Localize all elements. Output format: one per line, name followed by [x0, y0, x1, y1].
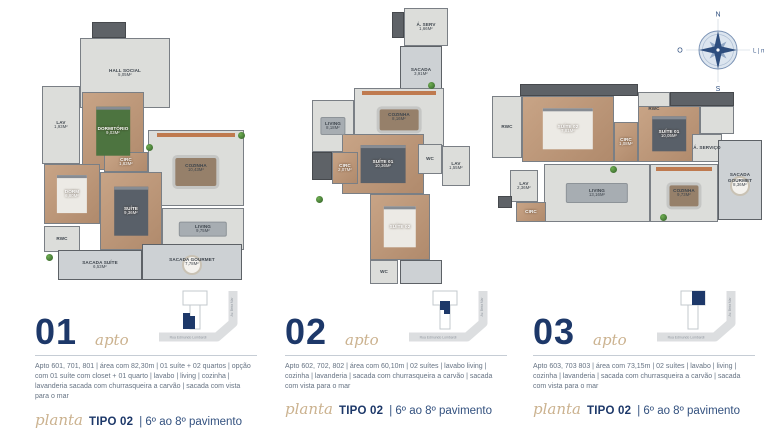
room-label: SACADA GOURMET7,78m²: [169, 257, 215, 267]
plant-icon: [316, 196, 323, 203]
pavimento-label: | 6º ao 8º pavimento: [139, 416, 242, 428]
compass-rose-icon: N S O L | mar: [672, 8, 764, 99]
room-area: 9,73m²: [673, 193, 695, 198]
room-label: DORMITÓRIO9,03m²: [98, 126, 129, 136]
compass-south-label: S: [716, 86, 721, 93]
room-dorm: DORM6,80m²: [44, 164, 100, 224]
room-label: LIVING9,75m²: [195, 224, 211, 234]
room-su-te-01: SUÍTE 0110,05m²: [638, 106, 700, 162]
room-wall-segment: [92, 22, 126, 38]
room-wall-segment: [700, 106, 734, 134]
room-label: CIRC: [525, 209, 537, 214]
room-label: LIVING8,18m²: [325, 121, 341, 131]
room-label: CIRC1,83m²: [119, 157, 133, 167]
room-label: SUÍTE 02: [390, 224, 411, 229]
unit-divider: [533, 355, 755, 356]
room-label: SUÍTE 027,81m²: [558, 124, 579, 134]
room-label: SUÍTE9,36m²: [124, 206, 138, 216]
unit-number: 03: [533, 311, 575, 353]
room-area: 13,16m²: [589, 193, 605, 198]
room-area: 1,83m²: [119, 162, 133, 167]
plant-icon: [46, 254, 53, 261]
room-wall-segment: [312, 152, 332, 180]
street-label-right: Av. Beira Mar: [480, 297, 484, 317]
unit-divider: [35, 355, 257, 356]
plant-icon: [146, 144, 153, 151]
room-cozinha: COZINHA10,43m²: [148, 130, 244, 206]
room-area: 1,93m²: [54, 125, 68, 130]
plant-icon: [238, 132, 245, 139]
room-lav: LAV1,55m²: [442, 146, 470, 186]
pavimento-label: | 6º ao 8º pavimento: [389, 405, 492, 417]
room-wall-segment: [392, 12, 404, 38]
room-label: LAV1,55m²: [449, 161, 463, 171]
room-sacada-su-te: SACADA SUÍTE6,53m²: [58, 250, 142, 280]
compass-west-label: O: [677, 48, 683, 55]
room-area: 9,36m²: [124, 211, 138, 216]
room-label: DORM6,80m²: [65, 189, 79, 199]
room-area: 7,81m²: [558, 129, 579, 134]
room-label: SACADA SUÍTE6,53m²: [82, 260, 118, 270]
unit-section-01: 01 apto Rua Edmundo Lombardi Av. Beira M…: [35, 287, 257, 429]
brochure-page: HALL SOCIAL5,05m²LAV1,93m²DORMITÓRIO9,03…: [0, 0, 768, 432]
room-area: 10,43m²: [185, 168, 207, 173]
room-label: WC: [426, 156, 434, 161]
unit-section-03: 03 apto Rua Edmundo Lombardi Av. Beira M…: [533, 287, 755, 429]
room-area: 1,66m²: [417, 27, 436, 32]
street-label-bottom: Rua Edmundo Lombardi: [420, 336, 457, 340]
room-label: LAV2,36m²: [517, 181, 531, 191]
planta-script-label: planta: [285, 400, 333, 418]
tipo-label: TIPO 02: [339, 405, 383, 417]
street-label-right: Av. Beira Mar: [230, 297, 234, 317]
compass-east-label: L | mar: [753, 49, 764, 55]
room-sacada-gourmet: SACADA GOURMET8,36m²: [718, 140, 762, 220]
room-su-te-02: SUÍTE 02: [370, 194, 430, 260]
room-area: 8,18m²: [325, 126, 341, 131]
unit-location-map: Rua Edmundo Lombardi Av. Beira Mar: [651, 287, 751, 347]
room-lav: LAV1,93m²: [42, 86, 80, 164]
room-label: SACADA GOURMET8,36m²: [719, 172, 761, 187]
room-wall-segment: [498, 196, 512, 208]
room-label: SACADA3,91m²: [411, 67, 431, 77]
room-area: 2,36m²: [517, 186, 531, 191]
room-area: 6,53m²: [82, 265, 118, 270]
planta-script-label: planta: [35, 411, 83, 429]
unit-section-02: 02 apto Rua Edmundo Lombardi Av. Beira M…: [285, 287, 507, 429]
room-circ: CIRC: [516, 202, 546, 222]
plant-icon: [610, 166, 617, 173]
compass-north-label: N: [715, 12, 720, 19]
room-label: COZINHA10,43m²: [185, 163, 207, 173]
room-wc: WC: [418, 144, 442, 174]
room-wall-segment: [400, 260, 442, 284]
room-label: COZINHA9,73m²: [673, 188, 695, 198]
floorplan-02: Á. SERV1,66m²SACADA3,91m²COZINHA8,16m²LI…: [312, 8, 470, 286]
unit-location-map: Rua Edmundo Lombardi Av. Beira Mar: [403, 287, 503, 347]
room-label: RWC: [648, 106, 659, 111]
room-cozinha: COZINHA9,73m²: [650, 164, 718, 222]
room-wall-segment: [520, 84, 638, 96]
room-su-te-02: SUÍTE 027,81m²: [522, 96, 614, 162]
room-serv: Á. SERV1,66m²: [404, 8, 448, 46]
room-label: LAV1,93m²: [54, 120, 68, 130]
street-label-bottom: Rua Edmundo Lombardi: [170, 336, 207, 340]
room-label: Á. SERVIÇO: [693, 145, 720, 150]
room-label: HALL SOCIAL5,05m²: [109, 68, 141, 78]
room-label: COZINHA8,16m²: [388, 112, 410, 122]
unit-divider: [285, 355, 507, 356]
plant-icon: [428, 82, 435, 89]
room-living: LIVING13,16m²: [544, 164, 650, 222]
room-area: 2,07m²: [338, 168, 352, 173]
room-circ: CIRC2,07m²: [332, 152, 358, 184]
street-label-bottom: Rua Edmundo Lombardi: [668, 336, 705, 340]
room-area: 7,78m²: [169, 262, 215, 267]
room-rwc: RWC: [44, 226, 80, 252]
room-area: 8,36m²: [719, 183, 761, 188]
room-area: 5,05m²: [109, 73, 141, 78]
room-label: RWC: [56, 236, 67, 241]
room-label: Á. SERV1,66m²: [417, 22, 436, 32]
room-area: 8,16m²: [388, 117, 410, 122]
floorplan-03: RWCSUÍTE 027,81m²CIRC1,08m²RWCSUÍTE 0110…: [492, 84, 762, 226]
apto-script-label: apto: [593, 331, 627, 349]
room-label: CIRC1,08m²: [619, 137, 633, 147]
unit-description: Apto 602, 702, 802 | área com 60,10m | 0…: [285, 362, 507, 392]
room-label: LIVING13,16m²: [589, 188, 605, 198]
room-label: RWC: [501, 124, 512, 129]
unit-description: Apto 603, 703 803 | área com 73,15m | 02…: [533, 362, 755, 392]
room-circ: CIRC1,08m²: [614, 122, 638, 162]
room-wc: WC: [370, 260, 398, 284]
street-label-right: Av. Beira Mar: [728, 297, 732, 317]
room-label: CIRC2,07m²: [338, 163, 352, 173]
room-label: SUÍTE 0110,36m²: [373, 159, 394, 169]
pavimento-label: | 6º ao 8º pavimento: [637, 405, 740, 417]
room-area: 3,91m²: [411, 72, 431, 77]
room-sacada-gourmet: SACADA GOURMET7,78m²: [142, 244, 242, 280]
room-area: 9,03m²: [98, 131, 129, 136]
highlighted-unit-shape: [692, 291, 705, 305]
room-area: 10,36m²: [373, 164, 394, 169]
room-label: SUÍTE 0110,05m²: [659, 129, 680, 139]
room-rwc: RWC: [492, 96, 522, 158]
unit-location-map: Rua Edmundo Lombardi Av. Beira Mar: [153, 287, 253, 347]
room-su-te: SUÍTE9,36m²: [100, 172, 162, 250]
room-area: 6,80m²: [65, 194, 79, 199]
room-area: 9,75m²: [195, 229, 211, 234]
tipo-label: TIPO 02: [89, 416, 133, 428]
floorplan-01: HALL SOCIAL5,05m²LAV1,93m²DORMITÓRIO9,03…: [42, 12, 244, 280]
unit-number: 02: [285, 311, 327, 353]
unit-number: 01: [35, 311, 77, 353]
room-area: 1,55m²: [449, 166, 463, 171]
tipo-label: TIPO 02: [587, 405, 631, 417]
apto-script-label: apto: [95, 331, 129, 349]
unit-description: Apto 601, 701, 801 | área com 82,30m | 0…: [35, 362, 257, 403]
room-label: WC: [380, 269, 388, 274]
apto-script-label: apto: [345, 331, 379, 349]
planta-script-label: planta: [533, 400, 581, 418]
room-area: 10,05m²: [659, 134, 680, 139]
room-lav: LAV2,36m²: [510, 170, 538, 202]
room-area: 1,08m²: [619, 142, 633, 147]
plant-icon: [660, 214, 667, 221]
